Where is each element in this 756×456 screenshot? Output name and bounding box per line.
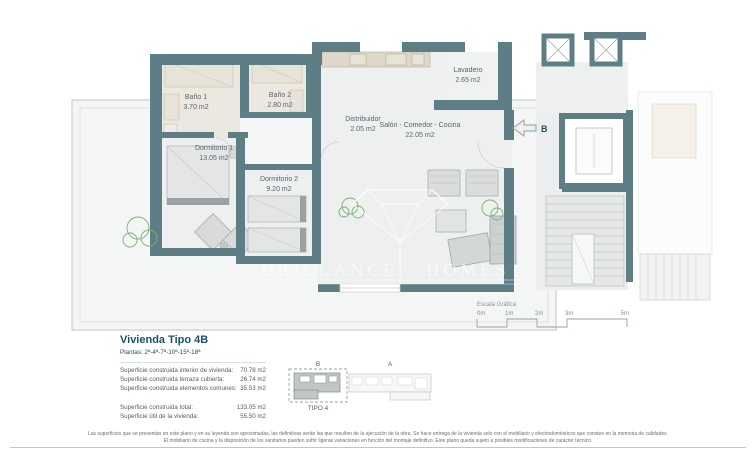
surface-value: 35.53 m2 (240, 384, 266, 393)
scale-tick-0: 0m (477, 311, 485, 317)
label-dormitorio1-name: Dormitorio 1 (195, 145, 233, 152)
surface-row: Superficie construida terraza cubierta: … (120, 375, 266, 384)
elevator (562, 116, 626, 186)
surface-label: Superficie construida total: (120, 403, 193, 412)
unit-title: Vivienda Tipo 4B (120, 334, 266, 347)
label-distribuidor-area: 2.05 m2 (350, 126, 375, 133)
kitchen-counter (322, 52, 430, 67)
disclaimer-line-1: Las superficies que se presentan en este… (30, 431, 726, 438)
label-dormitorio2-name: Dormitorio 2 (260, 176, 298, 183)
label-bano2-name: Baño 2 (269, 92, 291, 99)
key-plan-block-a: A (388, 361, 393, 368)
label-lavadero-area: 2.65 m2 (455, 77, 480, 84)
key-plan-label: TIPO 4 (308, 405, 329, 412)
surface-row: Superficie construida interior de vivien… (120, 366, 266, 375)
divider (120, 362, 266, 363)
disclaimer-block: Las superficies que se presentan en este… (30, 431, 726, 445)
terrace-door (340, 284, 400, 292)
surface-label: Superficie construida interior de vivien… (120, 366, 233, 375)
scale-tick-1: 1m (505, 311, 513, 317)
surface-row: Superficie útil de la vivienda: 55.50 m2 (120, 412, 266, 421)
surface-value: 70.78 m2 (240, 366, 266, 375)
adjacent-structure (638, 92, 712, 300)
surface-label: Superficie construida elementos comunes: (120, 384, 237, 393)
label-bano1-area: 3.70 m2 (183, 104, 208, 111)
key-plan-highlight-footprint (294, 373, 340, 399)
section-marker-label: B (541, 124, 548, 134)
bottom-rule (10, 447, 746, 448)
stairs (546, 196, 624, 286)
surface-value: 26.74 m2 (240, 375, 266, 384)
key-plan-block-b: B (316, 361, 320, 368)
shaft-1 (544, 36, 572, 64)
surface-row: Superficie construida total: 133.05 m2 (120, 403, 266, 412)
surface-totals: Superficie construida total: 133.05 m2 S… (120, 403, 266, 421)
unit-floors: Plantas: 2ª-4ª-7ª-10ª-15ª-18ª (120, 349, 266, 356)
label-salon-name: Salón - Comedor - Cocina (380, 122, 461, 129)
label-lavadero-name: Lavadero (453, 67, 482, 74)
label-bano1-name: Baño 1 (185, 94, 207, 101)
surface-value: 55.50 m2 (240, 412, 266, 421)
label-salon-area: 22.05 m2 (405, 132, 434, 139)
surface-value: 133.05 m2 (237, 403, 266, 412)
unit-info-block: Vivienda Tipo 4B Plantas: 2ª-4ª-7ª-10ª-1… (120, 334, 266, 421)
label-bano2-area: 2.80 m2 (267, 102, 292, 109)
shaft-2 (592, 36, 620, 64)
scale-tick-3: 3m (565, 311, 573, 317)
label-dormitorio2-area: 9.20 m2 (266, 186, 291, 193)
key-plan: B A TIPO 4 (289, 361, 431, 412)
surface-row: Superficie construida elementos comunes:… (120, 384, 266, 393)
scale-tick-4: 5m (621, 311, 629, 317)
watermark-word-1: BRILLANCE (262, 260, 399, 280)
surface-label: Superficie construida terraza cubierta: (120, 375, 224, 384)
disclaimer-line-2: El mobiliario de cocina y la disposición… (30, 438, 726, 445)
scale-tick-2: 2m (535, 311, 543, 317)
surface-label: Superficie útil de la vivienda: (120, 412, 198, 421)
label-dormitorio1-area: 13.05 m2 (199, 155, 228, 162)
watermark-word-2: HOMES (426, 260, 509, 280)
floor-plan-canvas: BRILLANCE HOMES Baño 1 3.70 m2 Baño 2 2.… (0, 0, 756, 456)
key-plan-other-footprint (349, 374, 431, 400)
plan-sheet: BRILLANCE HOMES Baño 1 3.70 m2 Baño 2 2.… (0, 0, 756, 456)
label-distribuidor-name: Distribuidor (345, 116, 381, 123)
scale-bar-title: Escala Gráfica (477, 302, 517, 308)
